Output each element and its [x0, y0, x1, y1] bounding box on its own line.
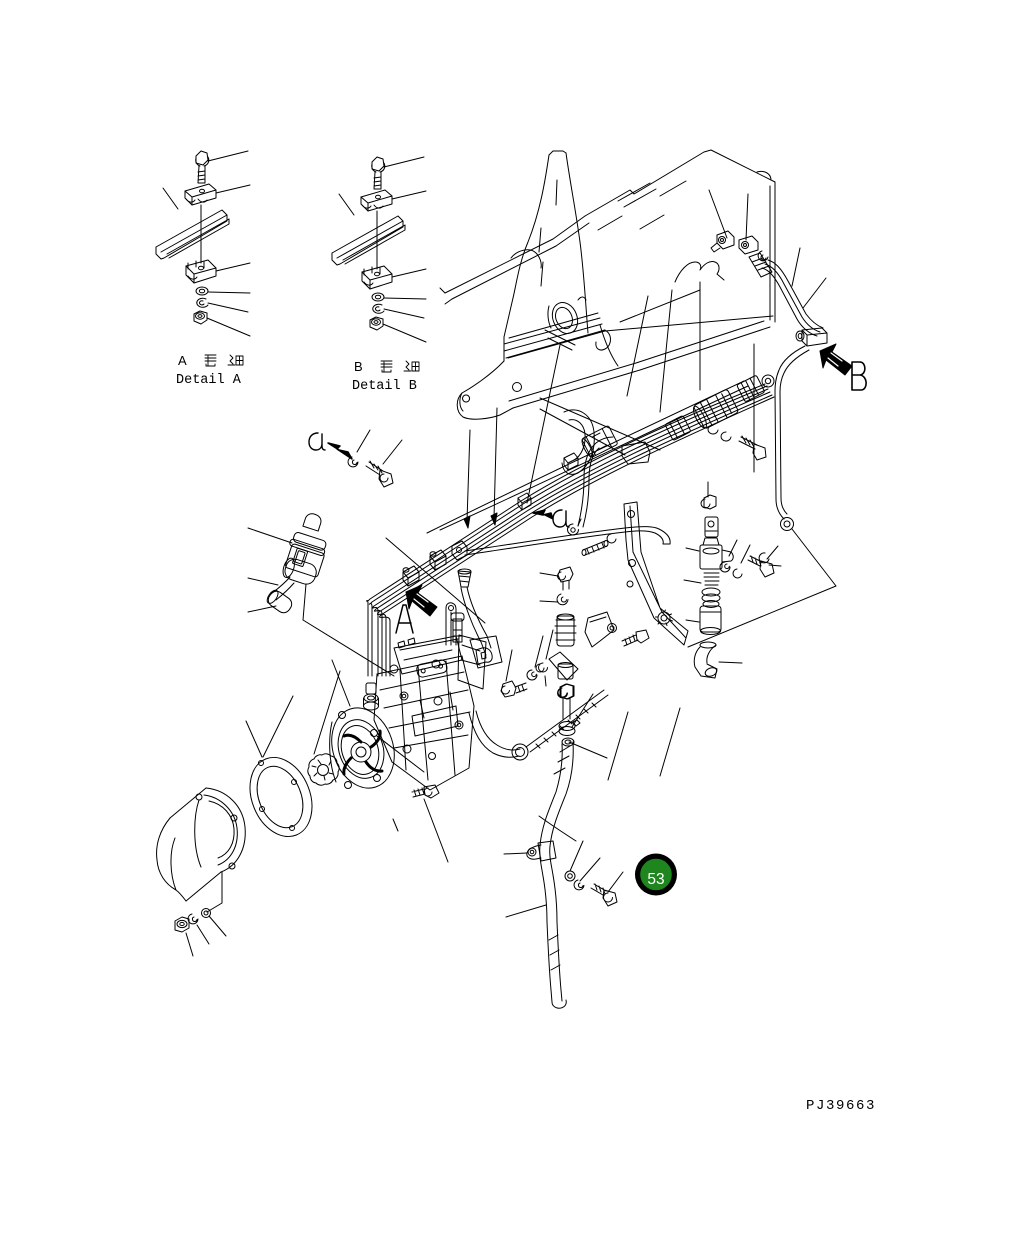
svg-text:PJ39663: PJ39663	[806, 1098, 876, 1114]
svg-text:B: B	[354, 359, 363, 374]
svg-text:Detail A: Detail A	[176, 373, 242, 388]
svg-text:53: 53	[647, 871, 664, 888]
svg-text:Detail B: Detail B	[352, 379, 417, 394]
svg-text:A: A	[178, 353, 187, 368]
